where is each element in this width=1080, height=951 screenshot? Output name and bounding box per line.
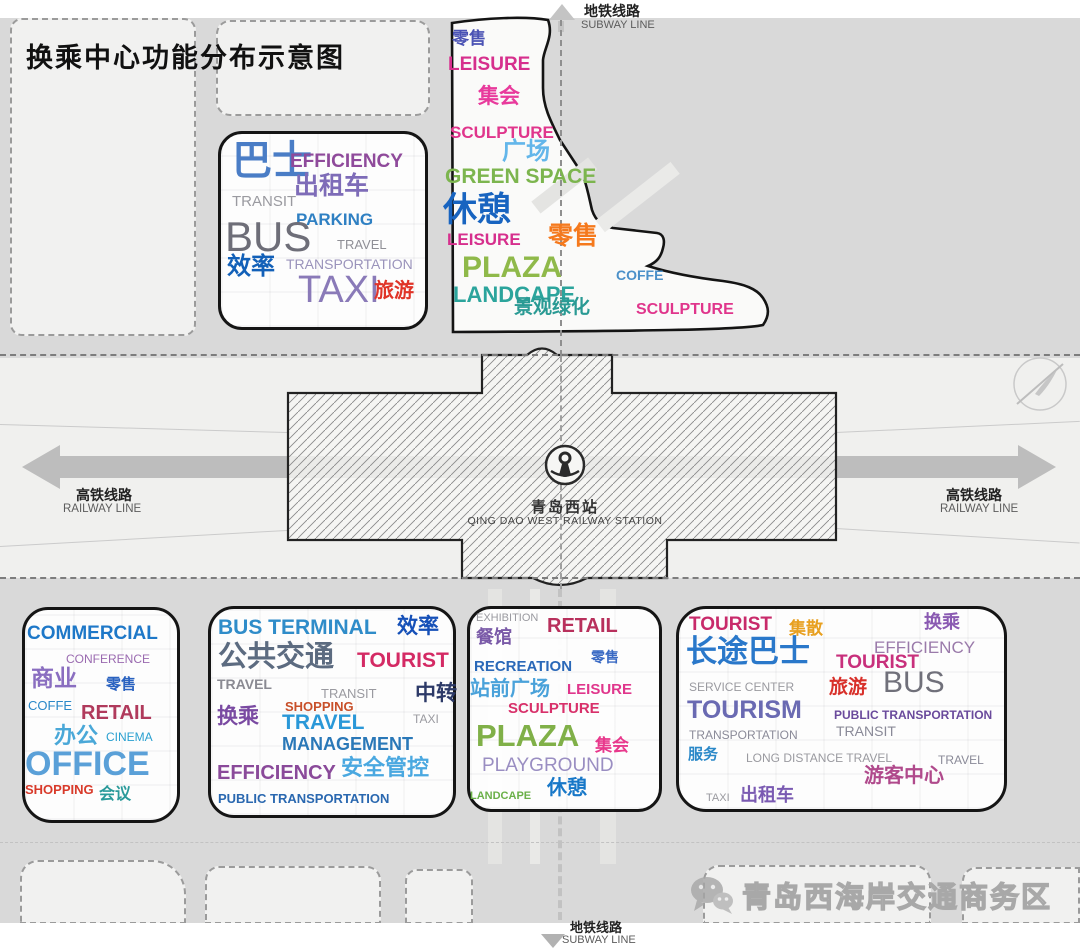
- cloud-word: COMMERCIAL: [27, 624, 158, 643]
- station-name-en: QING DAO WEST RAILWAY STATION: [415, 515, 715, 527]
- railway-line-right-label-en: RAILWAY LINE: [940, 503, 1018, 515]
- cloud-word: TOURIST: [689, 615, 772, 634]
- cloud-word: TRAVEL: [938, 754, 984, 766]
- cloud-word: 零售: [548, 224, 598, 249]
- railway-line-left-label-cn: 高铁线路: [76, 485, 132, 505]
- railway-line-left-label-en: RAILWAY LINE: [63, 503, 141, 515]
- railway-corridor-dashed-north: [0, 354, 1080, 356]
- cloud-word: TRANSIT: [232, 194, 296, 209]
- cloud-word: SERVICE CENTER: [689, 681, 794, 693]
- cloud-word: 休憩: [547, 778, 587, 798]
- cloud-word: TRANSIT: [836, 724, 896, 738]
- cloud-word: 集会: [595, 737, 629, 754]
- cloud-word: TAXI: [413, 713, 439, 725]
- cloud-word: LEISURE: [448, 55, 530, 74]
- cloud-word: 效率: [397, 616, 439, 637]
- cloud-word: EFFICIENCY: [290, 152, 403, 171]
- cloud-word: 服务: [688, 747, 718, 762]
- cloud-word: COFFE: [616, 268, 663, 282]
- transfer-center-function-diagram: 青岛西站 QING DAO WEST RAILWAY STATION 巴士EFF…: [0, 0, 1080, 951]
- cloud-word: 办公: [54, 725, 98, 747]
- cloud-word: TAXI: [706, 793, 730, 804]
- railway-arrow-right-icon: [1018, 445, 1056, 489]
- subway-line-bottom-label-en: SUBWAY LINE: [562, 934, 636, 946]
- cloud-word: RETAIL: [547, 616, 618, 636]
- cloud-word: LEISURE: [567, 682, 632, 697]
- cloud-word: 游客中心: [864, 766, 944, 786]
- cloud-word: TAXI: [298, 271, 380, 309]
- wordcloud-commercial-sw: COMMERCIALCONFERENCE商业零售COFFERETAIL办公CIN…: [22, 607, 180, 823]
- cloud-word: 会议: [99, 787, 131, 803]
- railway-arrow-left-icon: [22, 445, 60, 489]
- cloud-word: 餐馆: [476, 628, 512, 646]
- cloud-word: RETAIL: [81, 703, 152, 723]
- cloud-word: LEISURE: [447, 231, 521, 248]
- cloud-word: 休憩: [443, 193, 511, 227]
- cloud-word: 集会: [478, 86, 520, 107]
- cloud-word: CINEMA: [106, 731, 153, 743]
- cloud-word: BUS TERMINAL: [218, 617, 377, 638]
- wordcloud-coach-tourist-se: TOURIST集散换乘长途巴士EFFICIENCYTOURISTSERVICE …: [676, 606, 1007, 812]
- china-railway-logo-icon: [543, 443, 587, 487]
- bottom-white-strip: [0, 923, 1080, 951]
- cloud-word: 零售: [452, 30, 486, 47]
- page-title: 换乘中心功能分布示意图: [26, 36, 345, 75]
- cloud-word: 出租车: [740, 786, 794, 804]
- cloud-word: 商业: [31, 667, 77, 690]
- cloud-word: PUBLIC TRANSPORTATION: [834, 709, 992, 721]
- cloud-word: PUBLIC TRANSPORTATION: [218, 792, 389, 805]
- cloud-word: LANDCAPE: [470, 791, 531, 802]
- cloud-word: SCULPTURE: [636, 302, 734, 318]
- cloud-word: CONFERENCE: [66, 653, 150, 665]
- cloud-word: SHOPPING: [25, 783, 94, 796]
- cloud-word: 换乘: [924, 613, 960, 631]
- railway-corridor-dashed-south: [0, 577, 1080, 579]
- cloud-word: 旅游: [374, 281, 414, 301]
- wordcloud-plaza-leisure-n: 零售LEISURE集会SCULPTURE广场GREEN SPACE休憩LEISU…: [440, 10, 780, 340]
- wordcloud-bus-terminal-s: BUS TERMINAL效率公共交通TOURISTTRAVELTRANSIT中转…: [208, 606, 456, 818]
- cloud-word: 零售: [106, 677, 136, 692]
- wordcloud-transit-hub-nw: 巴士EFFICIENCY出租车TRANSITPARKINGBUSTRAVELTR…: [218, 131, 428, 330]
- cloud-word: 中转: [415, 683, 457, 704]
- cloud-word: EFFICIENCY: [217, 763, 336, 783]
- subway-line-top-label-en: SUBWAY LINE: [581, 19, 655, 31]
- cloud-word: OFFICE: [25, 747, 150, 781]
- cloud-word: PLAZA: [462, 253, 562, 283]
- city-block: [405, 869, 473, 924]
- cloud-word: GREEN SPACE: [445, 166, 596, 187]
- cloud-word: 长途巴士: [686, 636, 810, 667]
- cloud-word: 景观绿化: [514, 298, 590, 317]
- cloud-word: 旅游: [829, 678, 867, 697]
- watermark-text: 青岛西海岸交通商务区: [742, 874, 1052, 916]
- cloud-word: PLAZA: [476, 720, 579, 751]
- cloud-word: 换乘: [217, 706, 259, 727]
- cloud-word: 站前广场: [470, 679, 550, 699]
- cloud-word: BUS: [225, 216, 311, 258]
- compass-icon: [1005, 352, 1075, 418]
- cloud-word: 零售: [591, 650, 619, 664]
- railway-line-right-label-cn: 高铁线路: [946, 485, 1002, 505]
- cloud-word: TRAVEL: [217, 677, 272, 691]
- cloud-word: 安全管控: [341, 757, 429, 779]
- cloud-word: SCULPTURE: [508, 701, 600, 716]
- cloud-word: 广场: [502, 140, 550, 164]
- cloud-word: TOURIST: [357, 650, 449, 671]
- cloud-word: 出租车: [294, 174, 369, 199]
- watermark: 青岛西海岸交通商务区: [688, 874, 1052, 916]
- cloud-word: PLAYGROUND: [482, 756, 614, 775]
- cloud-word: COFFE: [28, 699, 72, 712]
- city-block: [205, 866, 381, 924]
- city-block: [20, 860, 186, 924]
- cloud-word: RECREATION: [474, 659, 572, 674]
- cloud-word: MANAGEMENT: [282, 735, 413, 753]
- station-name-cn: 青岛西站: [465, 496, 665, 517]
- cloud-word: TRAVEL: [337, 238, 387, 251]
- cloud-word: EXHIBITION: [476, 613, 538, 624]
- cloud-word: 公共交通: [218, 643, 334, 672]
- cloud-word: 效率: [227, 255, 275, 279]
- cloud-word: LONG DISTANCE TRAVEL: [746, 752, 892, 764]
- cloud-word: TRAVEL: [282, 712, 364, 733]
- subway-line-top-label-cn: 地铁线路: [584, 1, 640, 21]
- block-edge-dashed-line: [0, 842, 1080, 843]
- wordcloud-station-plaza-s: EXHIBITIONRETAIL餐馆零售RECREATION站前广场LEISUR…: [467, 606, 662, 812]
- cloud-word: BUS: [883, 668, 945, 698]
- cloud-word: TRANSPORTATION: [689, 729, 798, 741]
- cloud-word: TOURISM: [687, 698, 802, 723]
- wechat-icon: [688, 874, 734, 916]
